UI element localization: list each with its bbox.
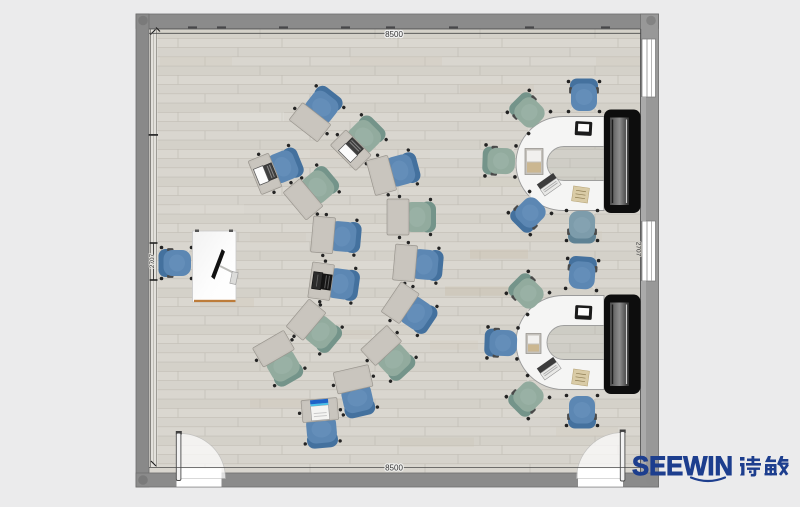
svg-text:8500: 8500 bbox=[385, 464, 403, 473]
svg-text:8500: 8500 bbox=[385, 30, 403, 39]
svg-text:2707: 2707 bbox=[149, 253, 156, 268]
svg-text:2707: 2707 bbox=[635, 242, 642, 257]
svg-text:SEEWIN: SEEWIN bbox=[632, 451, 733, 481]
